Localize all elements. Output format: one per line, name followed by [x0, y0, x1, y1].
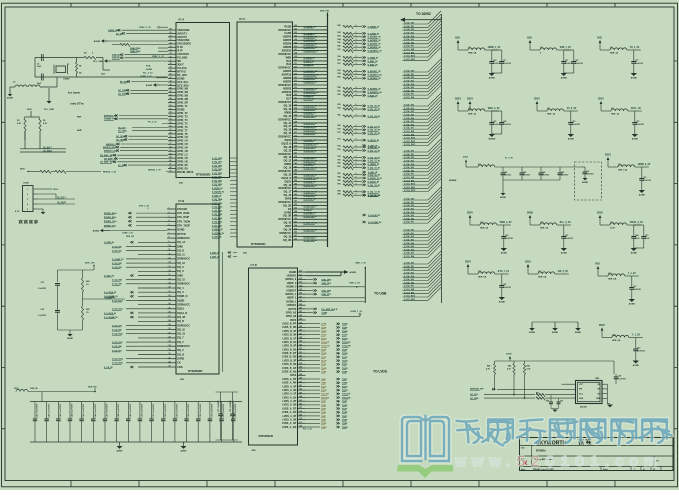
- svg-text:10: 10: [169, 245, 171, 247]
- svg-text:S_DA_IN2: S_DA_IN2: [404, 110, 415, 113]
- svg-text:100R_2A: 100R_2A: [30, 387, 38, 390]
- svg-text:162: 162: [294, 239, 297, 241]
- svg-text:155: 155: [294, 215, 297, 217]
- svg-text:C43 0.1uF/16V: C43 0.1uF/16V: [59, 403, 62, 417]
- svg-text:ETH_1_1V: ETH_1_1V: [498, 271, 510, 273]
- svg-text:4.7K: 4.7K: [43, 122, 48, 125]
- svg-text:45: 45: [170, 87, 172, 90]
- svg-text:109: 109: [294, 56, 297, 58]
- svg-text:65: 65: [170, 157, 172, 159]
- svg-text:38: 38: [170, 63, 172, 65]
- svg-text:159: 159: [294, 228, 297, 230]
- svg-text:D3V3: D3V3: [467, 99, 473, 101]
- svg-text:1: 1: [27, 189, 28, 191]
- svg-text:139: 139: [299, 304, 302, 306]
- svg-text:ETH_TXOP: ETH_TXOP: [177, 225, 190, 228]
- svg-text:LVDS_A_CN: LVDS_A_CN: [282, 411, 297, 414]
- svg-text:134: 134: [299, 284, 302, 287]
- svg-text:8: 8: [169, 237, 170, 239]
- svg-text:S_DA_IN0: S_DA_IN0: [404, 22, 415, 25]
- svg-text:121: 121: [294, 97, 297, 99]
- svg-text:R70: R70: [338, 128, 341, 130]
- svg-text:136: 136: [299, 293, 302, 295]
- svg-text:S_DA_IN1: S_DA_IN1: [404, 73, 415, 76]
- svg-text:24: 24: [169, 302, 171, 305]
- svg-text:S_DQ_IN11: S_DQ_IN11: [404, 141, 416, 143]
- svg-text:33: 33: [170, 46, 172, 48]
- svg-text:0.1uF/16V: 0.1uF/16V: [523, 174, 530, 176]
- svg-text:0.1uF/16V: 0.1uF/16V: [633, 289, 642, 291]
- svg-text:HDR_UA: HDR_UA: [608, 278, 617, 281]
- svg-text:107: 107: [294, 49, 297, 51]
- svg-text:AGND: AGND: [629, 303, 636, 306]
- svg-text:63: 63: [170, 150, 172, 152]
- svg-text:S_DA_IN6: S_DA_IN6: [404, 89, 415, 92]
- svg-text:S_DQ_IN11: S_DQ_IN11: [404, 299, 416, 301]
- svg-text:C57 0.1uF/16V: C57 0.1uF/16V: [223, 403, 225, 417]
- svg-text:VNEC_3_3V: VNEC_3_3V: [152, 56, 164, 58]
- svg-text:S_DA_IN1: S_DA_IN1: [404, 265, 415, 268]
- svg-text:S_DQ_IN12: S_DQ_IN12: [404, 190, 416, 192]
- svg-text:DDR_FW: DDR_FW: [88, 387, 97, 389]
- svg-text:1%: 1%: [86, 312, 89, 314]
- svg-text:150: 150: [299, 344, 302, 346]
- svg-text:ETH_RXIP: ETH_RXIP: [177, 216, 189, 219]
- svg-text:LVDS_A_0N: LVDS_A_0N: [282, 389, 296, 392]
- svg-text:LVDS_B_CP: LVDS_B_CP: [282, 352, 297, 355]
- svg-text:141: 141: [299, 310, 302, 313]
- svg-text:157: 157: [294, 221, 297, 223]
- svg-text:5: 5: [169, 224, 170, 226]
- svg-text:S_DA_IN6: S_DA_IN6: [404, 281, 415, 284]
- svg-text:AGND: AGND: [500, 196, 507, 199]
- svg-text:S_DA_IN7: S_DA_IN7: [404, 93, 415, 96]
- svg-text:TO DDR2: TO DDR2: [416, 12, 431, 16]
- svg-text:S_DA_IN7: S_DA_IN7: [404, 221, 415, 224]
- svg-text:S_DA_IN1: S_DA_IN1: [404, 107, 415, 110]
- svg-text:56Ω: 56Ω: [86, 281, 90, 283]
- svg-text:37: 37: [169, 357, 171, 359]
- svg-text:128: 128: [294, 122, 297, 124]
- svg-text:39: 39: [170, 67, 172, 69]
- svg-text:146: 146: [294, 183, 297, 186]
- svg-text:C57: C57: [575, 60, 578, 62]
- svg-text:W2K_3_3V: W2K_3_3V: [488, 108, 500, 110]
- svg-text:32: 32: [169, 337, 171, 339]
- svg-text:S_DA_IN7: S_DA_IN7: [404, 173, 415, 176]
- svg-text:30: 30: [169, 328, 171, 330]
- svg-text:AGND: AGND: [93, 230, 100, 233]
- svg-text:AGND: AGND: [116, 449, 123, 452]
- svg-text:40: 40: [170, 69, 172, 72]
- svg-text:125: 125: [294, 111, 297, 113]
- svg-text:AGND: AGND: [561, 252, 568, 255]
- svg-text:R66: R66: [338, 115, 341, 117]
- svg-text:AGND: AGND: [529, 331, 536, 334]
- svg-text:LVDS_A_CP: LVDS_A_CP: [282, 407, 297, 410]
- svg-text:143: 143: [294, 172, 297, 175]
- svg-text:R73: R73: [338, 139, 341, 141]
- svg-text:CORE_1_3V: CORE_1_3V: [350, 311, 363, 313]
- svg-text:C51 0.1uF/16V: C51 0.1uF/16V: [153, 403, 155, 417]
- svg-text:140: 140: [294, 162, 297, 165]
- svg-text:U?-B: U?-B: [178, 199, 184, 203]
- svg-text:157: 157: [299, 370, 302, 372]
- svg-text:S_DA_IN2: S_DA_IN2: [404, 28, 415, 31]
- svg-text:D3V3: D3V3: [290, 374, 297, 377]
- svg-text:LVDS_A_2P: LVDS_A_2P: [283, 400, 297, 403]
- svg-text:26D: 26D: [179, 183, 183, 185]
- svg-text:R85: R85: [338, 180, 341, 182]
- svg-text:DDRHIVCC: DDRHIVCC: [177, 304, 190, 307]
- svg-text:DQ_8: DQ_8: [177, 270, 184, 273]
- svg-text:C37: C37: [633, 286, 636, 288]
- svg-text:POB: POB: [146, 66, 151, 68]
- svg-text:S_DA_IN4: S_DA_IN4: [404, 35, 415, 38]
- svg-text:S_DQ_IN11: S_DQ_IN11: [404, 59, 416, 61]
- svg-text:LVDS_B_PP: LVDS_B_PP: [282, 323, 296, 326]
- svg-text:147: 147: [299, 332, 302, 335]
- svg-text:3: 3: [169, 216, 170, 218]
- svg-text:R53: R53: [338, 70, 341, 72]
- svg-text:129: 129: [294, 125, 297, 127]
- svg-text:122: 122: [294, 101, 297, 103]
- svg-text:C12: C12: [637, 348, 640, 350]
- svg-text:LVDS_B_1P: LVDS_B_1P: [283, 337, 297, 340]
- svg-text:AGND: AGND: [489, 77, 496, 80]
- svg-text:153: 153: [299, 356, 302, 358]
- svg-text:DQ_5: DQ_5: [177, 341, 184, 344]
- svg-text:134: 134: [294, 141, 297, 144]
- svg-text:101: 101: [294, 29, 297, 31]
- svg-text:R80: R80: [338, 163, 341, 165]
- svg-text:HDR_UA: HDR_UA: [468, 52, 477, 55]
- svg-text:25: 25: [169, 307, 171, 309]
- svg-text:100: 100: [294, 25, 297, 27]
- svg-text:S_DA_IN1: S_DA_IN1: [404, 25, 415, 28]
- svg-text:AVD: AVD: [595, 263, 600, 266]
- svg-text:DQSB: DQSB: [177, 299, 184, 302]
- svg-text:43: 43: [170, 80, 172, 83]
- svg-text:C50 0.1uF/16V: C50 0.1uF/16V: [142, 403, 144, 417]
- svg-text:116: 116: [294, 80, 297, 82]
- svg-text:172: 172: [299, 426, 302, 428]
- svg-text:HDR_1A: HDR_1A: [610, 52, 619, 55]
- svg-text:DQA1_N: DQA1_N: [177, 312, 187, 315]
- svg-text:AVD: AVD: [527, 37, 532, 40]
- svg-text:36: 36: [169, 353, 171, 355]
- svg-text:S_DA_IN4: S_DA_IN4: [404, 83, 415, 86]
- svg-text:61: 61: [170, 143, 172, 145]
- svg-text:167: 167: [299, 407, 302, 409]
- svg-text:HSDP_1: HSDP_1: [287, 297, 297, 300]
- svg-text:S_DA_IN7: S_DA_IN7: [404, 285, 415, 288]
- svg-text:0.1uF/16V: 0.1uF/16V: [618, 378, 627, 380]
- svg-text:148: 148: [299, 336, 302, 339]
- svg-text:35: 35: [169, 349, 171, 351]
- svg-text:PO_3_3V: PO_3_3V: [148, 122, 157, 124]
- svg-text:53: 53: [170, 115, 172, 117]
- svg-text:R42: R42: [338, 31, 341, 34]
- svg-text:S_DQ_IN11: S_DQ_IN11: [404, 187, 416, 189]
- svg-text:C54 0.1uF/16V: C54 0.1uF/16V: [187, 403, 190, 417]
- svg-text:169: 169: [299, 415, 302, 417]
- svg-text:S_DA_IN7: S_DA_IN7: [404, 45, 415, 48]
- svg-text:DQ_15: DQ_15: [177, 279, 185, 282]
- svg-text:0.1uF/16V: 0.1uF/16V: [572, 124, 581, 126]
- svg-text:HSDM_0: HSDM_0: [286, 286, 297, 289]
- svg-text:132: 132: [294, 135, 297, 137]
- svg-text:LVDS_A_AN: LVDS_A_AN: [282, 426, 297, 429]
- svg-text:D3V3: D3V3: [605, 155, 611, 157]
- svg-text:DDRHIVCC: DDRHIVCC: [177, 324, 190, 327]
- svg-text:50: 50: [170, 105, 172, 107]
- svg-text:AGND: AGND: [575, 331, 582, 334]
- svg-text:S_DA_IN3: S_DA_IN3: [404, 80, 415, 83]
- svg-text:57: 57: [170, 129, 172, 131]
- svg-text:S_DA_IN3: S_DA_IN3: [404, 272, 415, 275]
- svg-text:3: 3: [27, 199, 28, 201]
- svg-text:AMP: AMP: [77, 129, 82, 132]
- svg-text:S_DA_IN3: S_DA_IN3: [404, 239, 415, 242]
- svg-text:0.1uF/50V: 0.1uF/50V: [38, 288, 47, 290]
- svg-text:MTTVD: MTTVD: [177, 233, 186, 236]
- svg-text:154: 154: [294, 210, 297, 213]
- svg-text:102: 102: [294, 32, 297, 34]
- svg-text:4: 4: [169, 219, 170, 222]
- svg-text:DDRHIVCC: DDRHIVCC: [177, 283, 190, 286]
- svg-text:ETHSVD: ETHSVD: [177, 208, 187, 211]
- svg-text:150: 150: [294, 197, 297, 199]
- svg-text:0.1uF/16V: 0.1uF/16V: [636, 124, 645, 126]
- svg-text:14: 14: [169, 261, 171, 264]
- svg-text:69: 69: [170, 171, 172, 173]
- svg-text:141: 141: [294, 165, 297, 168]
- svg-text:C50: C50: [493, 60, 496, 62]
- svg-text:HDR_1A: HDR_1A: [547, 113, 556, 116]
- svg-text:S_DA_IN4: S_DA_IN4: [404, 163, 415, 166]
- svg-text:160: 160: [299, 381, 302, 383]
- svg-text:2: 2: [169, 212, 170, 214]
- svg-text:AVTIV3: AVTIV3: [288, 308, 297, 311]
- svg-text:AGND: AGND: [631, 77, 638, 80]
- svg-text:166: 166: [299, 404, 302, 406]
- svg-text:S_DQ_IN10: S_DQ_IN10: [404, 56, 416, 58]
- svg-text:R84: R84: [338, 176, 341, 179]
- svg-text:C25: C25: [493, 121, 496, 123]
- svg-text:56Ω: 56Ω: [86, 309, 90, 311]
- svg-text:DQ_13: DQ_13: [177, 333, 185, 336]
- svg-text:S_DA_IN3: S_DA_IN3: [404, 114, 415, 117]
- svg-text:145: 145: [299, 325, 302, 328]
- svg-text:DQSB_N: DQSB_N: [177, 295, 187, 298]
- svg-text:LVDS_B_2N: LVDS_B_2N: [282, 348, 296, 351]
- svg-text:PLL_3_3V: PLL_3_3V: [143, 73, 153, 75]
- svg-text:S_DA_IN5: S_DA_IN5: [404, 166, 415, 169]
- svg-text:26: 26: [169, 312, 171, 314]
- svg-text:49: 49: [170, 100, 172, 103]
- svg-text:CORE_1_2V: CORE_1_2V: [122, 233, 134, 235]
- svg-text:55: 55: [170, 122, 172, 124]
- svg-text:170MHz: 170MHz: [63, 79, 70, 81]
- svg-text:TO USB: TO USB: [374, 292, 387, 296]
- svg-text:165: 165: [299, 400, 302, 402]
- svg-text:148: 148: [294, 189, 297, 192]
- svg-text:144: 144: [299, 321, 302, 324]
- svg-text:AGND: AGND: [180, 449, 187, 452]
- svg-text:R58: R58: [338, 87, 341, 89]
- svg-text:67: 67: [170, 164, 172, 166]
- svg-text:C11: C11: [565, 60, 568, 62]
- svg-text:R89: R89: [338, 194, 341, 196]
- svg-text:LVDS_B_CN: LVDS_B_CN: [282, 356, 297, 359]
- svg-text:26D: 26D: [252, 450, 256, 452]
- svg-text:24C0B: 24C0B: [580, 406, 587, 409]
- svg-text:S_DA_IN1: S_DA_IN1: [404, 232, 415, 235]
- svg-text:S_DQ_IN8: S_DQ_IN8: [404, 131, 415, 133]
- svg-text:ETH_RXIN: ETH_RXIN: [177, 212, 189, 215]
- svg-text:U?-A: U?-A: [178, 18, 184, 22]
- svg-text:164: 164: [299, 395, 302, 398]
- svg-text:HDR_1A: HDR_1A: [540, 227, 549, 230]
- svg-text:156: 156: [294, 218, 297, 220]
- svg-text:only STm: only STm: [70, 102, 84, 106]
- svg-text:C53 0.1uF/16V: C53 0.1uF/16V: [177, 403, 179, 417]
- svg-text:C53: C53: [505, 235, 508, 237]
- svg-text:C29: C29: [546, 400, 549, 402]
- svg-text:56: 56: [170, 126, 172, 128]
- svg-text:C17: C17: [503, 60, 506, 62]
- svg-text:29: 29: [169, 324, 171, 326]
- svg-text:103: 103: [294, 35, 297, 37]
- svg-text:153: 153: [294, 208, 297, 210]
- svg-text:7: 7: [169, 233, 170, 235]
- svg-text:R63: R63: [338, 104, 341, 106]
- svg-text:138: 138: [294, 156, 297, 158]
- svg-text:C44: C44: [635, 234, 638, 237]
- svg-text:138: 138: [299, 300, 302, 302]
- svg-text:GPIO_H3: GPIO_H3: [286, 315, 297, 318]
- svg-text:17: 17: [169, 274, 171, 276]
- svg-text:160: 160: [294, 232, 297, 234]
- svg-text:S_DA_IN6: S_DA_IN6: [404, 248, 415, 251]
- svg-text:RFAGE_3_3V: RFAGE_3_3V: [103, 170, 117, 173]
- svg-text:D3V3: D3V3: [455, 99, 461, 101]
- svg-text:143: 143: [299, 318, 302, 321]
- svg-text:GB_3_3V: GB_3_3V: [558, 271, 569, 273]
- svg-text:S_DA_IN0: S_DA_IN0: [404, 262, 415, 265]
- svg-text:DQ_3B: DQ_3B: [283, 239, 291, 242]
- svg-text:LVDS_B_PN: LVDS_B_PN: [282, 326, 296, 329]
- svg-text:AVDDA_1: AVDDA_1: [285, 293, 297, 296]
- svg-text:DQ_10: DQ_10: [177, 328, 185, 331]
- svg-text:1%: 1%: [86, 284, 89, 286]
- svg-text:S_DA_IN4: S_DA_IN4: [404, 117, 415, 120]
- svg-text:1: 1: [169, 208, 170, 210]
- svg-text:PLL_GND: PLL_GND: [44, 109, 54, 111]
- svg-text:152: 152: [299, 352, 302, 354]
- svg-text:0.1uF/50V: 0.1uF/50V: [38, 315, 47, 317]
- svg-text:51: 51: [170, 108, 172, 110]
- svg-text:C41 0.1uF/16V: C41 0.1uF/16V: [36, 403, 39, 417]
- svg-text:119: 119: [294, 91, 297, 93]
- svg-text:S_DQ_IN8: S_DQ_IN8: [404, 256, 415, 258]
- svg-text:0.1uF/16V: 0.1uF/16V: [503, 287, 512, 289]
- svg-text:LVDS_B_AN: LVDS_B_AN: [282, 371, 297, 374]
- svg-text:V0_3_3V: V0_3_3V: [567, 108, 577, 110]
- svg-text:HDR_1A: HDR_1A: [480, 227, 489, 230]
- svg-text:33: 33: [169, 341, 171, 343]
- svg-text:USBAV1: USBAV1: [287, 275, 297, 278]
- svg-text:26D: 26D: [180, 379, 184, 381]
- svg-text:R81: R81: [338, 166, 341, 168]
- svg-text:C21: C21: [41, 282, 44, 284]
- svg-text:R54: R54: [338, 72, 341, 75]
- svg-text:S_DQ_IN8: S_DQ_IN8: [404, 97, 415, 99]
- svg-text:46: 46: [170, 90, 172, 93]
- svg-text:AGND: AGND: [94, 40, 101, 43]
- svg-text:D5V5: D5V5: [467, 213, 473, 215]
- svg-text:48: 48: [170, 97, 172, 100]
- svg-text:C58 0.1uF/16V: C58 0.1uF/16V: [235, 403, 237, 417]
- svg-text:S_DA_IN6: S_DA_IN6: [404, 41, 415, 44]
- svg-text:R3: R3: [17, 120, 19, 122]
- svg-text:DQ_1B: DQ_1B: [177, 316, 185, 319]
- svg-text:R71: R71: [338, 132, 341, 134]
- svg-text:137: 137: [299, 296, 302, 298]
- svg-text:LVDS_B_0N: LVDS_B_0N: [282, 334, 296, 337]
- svg-text:132: 132: [299, 278, 302, 280]
- svg-text:DDR_1V8: DDR_1V8: [85, 263, 95, 265]
- svg-text:R5: R5: [43, 120, 45, 122]
- svg-text:LVDS_B_AP: LVDS_B_AP: [282, 367, 297, 370]
- svg-text:DQ_1A: DQ_1A: [177, 241, 185, 244]
- svg-text:AGND: AGND: [633, 364, 640, 367]
- svg-text:28: 28: [170, 29, 172, 31]
- svg-text:DDRHIVCC: DDRHIVCC: [177, 258, 190, 261]
- svg-text:DQ_11: DQ_11: [177, 254, 185, 257]
- svg-text:C24: C24: [503, 120, 506, 123]
- svg-text:R79: R79: [338, 159, 341, 161]
- svg-text:158: 158: [299, 374, 302, 376]
- svg-text:RFAGE_3_3V: RFAGE_3_3V: [148, 169, 161, 172]
- svg-text:151: 151: [294, 201, 297, 203]
- svg-text:C18: C18: [572, 121, 575, 123]
- svg-text:GPIO_H2: GPIO_H2: [286, 311, 297, 314]
- svg-text:SDA: SDA: [579, 397, 584, 400]
- svg-text:GND: GND: [596, 398, 601, 400]
- svg-text:S_DQ_IN9: S_DQ_IN9: [404, 52, 415, 54]
- svg-text:S_DA_IN5: S_DA_IN5: [404, 86, 415, 89]
- svg-text:DQ_B: DQ_B: [177, 353, 184, 356]
- svg-text:D3V3: D3V3: [465, 262, 471, 264]
- svg-text:170: 170: [299, 418, 302, 420]
- svg-text:AVD: AVD: [455, 37, 460, 40]
- svg-text:AGND: AGND: [7, 97, 14, 100]
- svg-text:144: 144: [294, 176, 297, 179]
- svg-text:34: 34: [169, 344, 171, 347]
- svg-text:S_DA_IN4: S_DA_IN4: [404, 275, 415, 278]
- svg-text:130: 130: [294, 128, 297, 130]
- svg-text:DQA1: DQA1: [177, 308, 184, 311]
- svg-text:LVDS_A_1P: LVDS_A_1P: [283, 393, 297, 396]
- svg-text:USB_3_3V: USB_3_3V: [349, 283, 360, 285]
- svg-text:3DV0: 3DV0: [53, 189, 59, 191]
- svg-text:R45: R45: [508, 365, 511, 368]
- svg-text:0.1uF/16V: 0.1uF/16V: [505, 238, 514, 240]
- svg-text:AGND: AGND: [582, 181, 589, 184]
- svg-text:28: 28: [169, 320, 171, 322]
